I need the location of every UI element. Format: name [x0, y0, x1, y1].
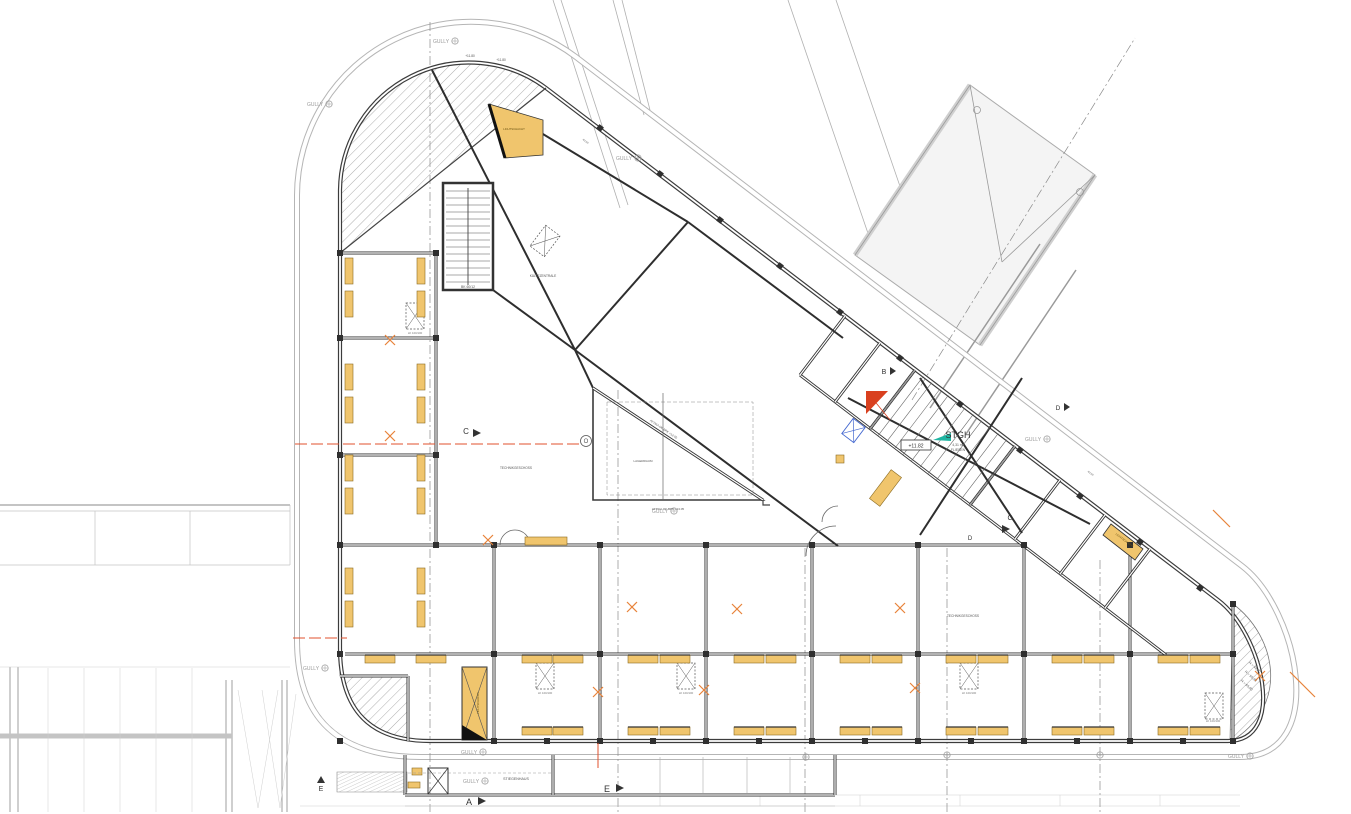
section-letter: C [1007, 515, 1012, 522]
skylight [345, 488, 353, 514]
plan-label: LICHTSCHACHT [476, 692, 480, 714]
skylight [417, 601, 425, 627]
plan-label: 4,31 m² [952, 443, 964, 447]
column-node [337, 738, 343, 744]
skylight [553, 655, 583, 663]
plan-label: LK 100/100 [679, 691, 694, 695]
gully-label: GULLY [433, 39, 450, 45]
skylight [1190, 655, 1220, 663]
skylight [1052, 727, 1082, 735]
paper [0, 0, 1351, 814]
plan-label: LK 100/100 [1206, 719, 1221, 723]
elevation-value: +11.82 [908, 444, 923, 450]
column-node [491, 738, 497, 744]
plan-label: KÄLTEZENTRALE [530, 274, 557, 278]
gully-label: GULLY [1025, 437, 1042, 443]
column-node [544, 738, 550, 744]
skylight [417, 397, 425, 423]
plan-label: FLIESEN [951, 448, 966, 452]
skylight [978, 727, 1008, 735]
skylight [840, 727, 870, 735]
column-node [650, 738, 656, 744]
floor-plan-canvas: GULLYGULLYGULLYGULLYGULLYGULLYGULLYGULLY… [0, 0, 1351, 814]
skylight [1084, 727, 1114, 735]
column-node [597, 542, 603, 548]
skylight [734, 655, 764, 663]
column-node [1230, 601, 1236, 607]
skylight [417, 568, 425, 594]
skylight [522, 727, 552, 735]
skylight [345, 601, 353, 627]
column-node [597, 651, 603, 657]
skylight [734, 727, 764, 735]
stair-hatch-strip [337, 772, 407, 792]
skylight [766, 727, 796, 735]
plan-label: ATTIKA OK BPK +13.05 [652, 507, 685, 511]
column-node [703, 651, 709, 657]
skylight [345, 455, 353, 481]
skylight [345, 258, 353, 284]
skylight [1158, 727, 1188, 735]
section-letter: E [604, 784, 610, 794]
skylight [660, 655, 690, 663]
column-node [1021, 651, 1027, 657]
plan-label: +11.80 [496, 58, 506, 62]
gully-label: GULLY [461, 750, 478, 756]
skylight [872, 655, 902, 663]
skylight [417, 364, 425, 390]
column-node [1180, 738, 1186, 744]
gully-label: GULLY [303, 666, 320, 672]
section-letter: A [466, 797, 472, 807]
column-node [337, 542, 343, 548]
column-node [337, 250, 343, 256]
gully-label: GULLY [1228, 754, 1245, 760]
column-node [1230, 738, 1236, 744]
gully-label: GULLY [616, 156, 633, 162]
skylight [416, 655, 446, 663]
skylight [345, 364, 353, 390]
plan-label: TECHNIKGESCHOSS [500, 466, 532, 470]
skylight [840, 655, 870, 663]
skylight [872, 727, 902, 735]
section-letter: D [968, 536, 973, 542]
skylight [1190, 727, 1220, 735]
column-node [809, 738, 815, 744]
skylight [417, 291, 425, 317]
column-node [809, 651, 815, 657]
column-node [1230, 651, 1236, 657]
skylight [525, 537, 567, 545]
floor-plan-viewport: GULLYGULLYGULLYGULLYGULLYGULLYGULLYGULLY… [0, 0, 1351, 814]
skylight [345, 291, 353, 317]
skylight [1158, 655, 1188, 663]
column-node [915, 651, 921, 657]
skylight [766, 655, 796, 663]
skylight [946, 727, 976, 735]
column-node [337, 452, 343, 458]
section-letter: E [319, 786, 324, 793]
skylight [345, 397, 353, 423]
column-node [433, 452, 439, 458]
column-node [433, 542, 439, 548]
column-node [915, 738, 921, 744]
plan-label: LAGERRAUM [633, 459, 653, 463]
skylight [408, 782, 420, 788]
skylight [628, 727, 658, 735]
column-node [433, 335, 439, 341]
gully-label: GULLY [463, 779, 480, 785]
column-node [337, 335, 343, 341]
skylight [365, 655, 395, 663]
column-node [433, 250, 439, 256]
column-node [491, 651, 497, 657]
column-node [756, 738, 762, 744]
skylight [1052, 655, 1082, 663]
plan-label: +11.80 [465, 54, 475, 58]
skylight [417, 488, 425, 514]
skylight [628, 655, 658, 663]
axis-letter: O [584, 439, 589, 445]
column-node [337, 651, 343, 657]
skylight [660, 727, 690, 735]
staircase [443, 183, 493, 290]
plan-label: STGH [945, 430, 970, 440]
section-letter: B [882, 369, 887, 376]
skylight [978, 655, 1008, 663]
elevation-box: +11.82 [901, 440, 931, 450]
column-node [968, 738, 974, 744]
column-node [703, 542, 709, 548]
column-node [809, 542, 815, 548]
skylight [836, 455, 844, 463]
column-node [703, 738, 709, 744]
gully-label: GULLY [307, 102, 324, 108]
skylight [345, 568, 353, 594]
plan-label: LK 100/100 [962, 691, 977, 695]
skylight [522, 655, 552, 663]
skylight [412, 768, 422, 775]
plan-label: TECHNIKGESCHOSS [947, 614, 979, 618]
plan-label: BK 60/12 [461, 285, 475, 289]
column-node [1021, 542, 1027, 548]
column-node [491, 542, 497, 548]
skylight [417, 455, 425, 481]
plan-label: LK 100/100 [408, 331, 423, 335]
skylight [417, 258, 425, 284]
column-node [915, 542, 921, 548]
column-node [1021, 738, 1027, 744]
skylight [946, 655, 976, 663]
plan-label: LK 100/100 [538, 691, 553, 695]
section-letter: D [1056, 405, 1061, 412]
skylight [553, 727, 583, 735]
skylight [1084, 655, 1114, 663]
section-letter: C [463, 427, 469, 436]
plan-label: LICHTSCHACHT [503, 127, 525, 131]
column-node [1074, 738, 1080, 744]
column-node [862, 738, 868, 744]
plan-label: STIEGENHAUS [503, 777, 529, 781]
column-node [1127, 738, 1133, 744]
column-node [1127, 651, 1133, 657]
